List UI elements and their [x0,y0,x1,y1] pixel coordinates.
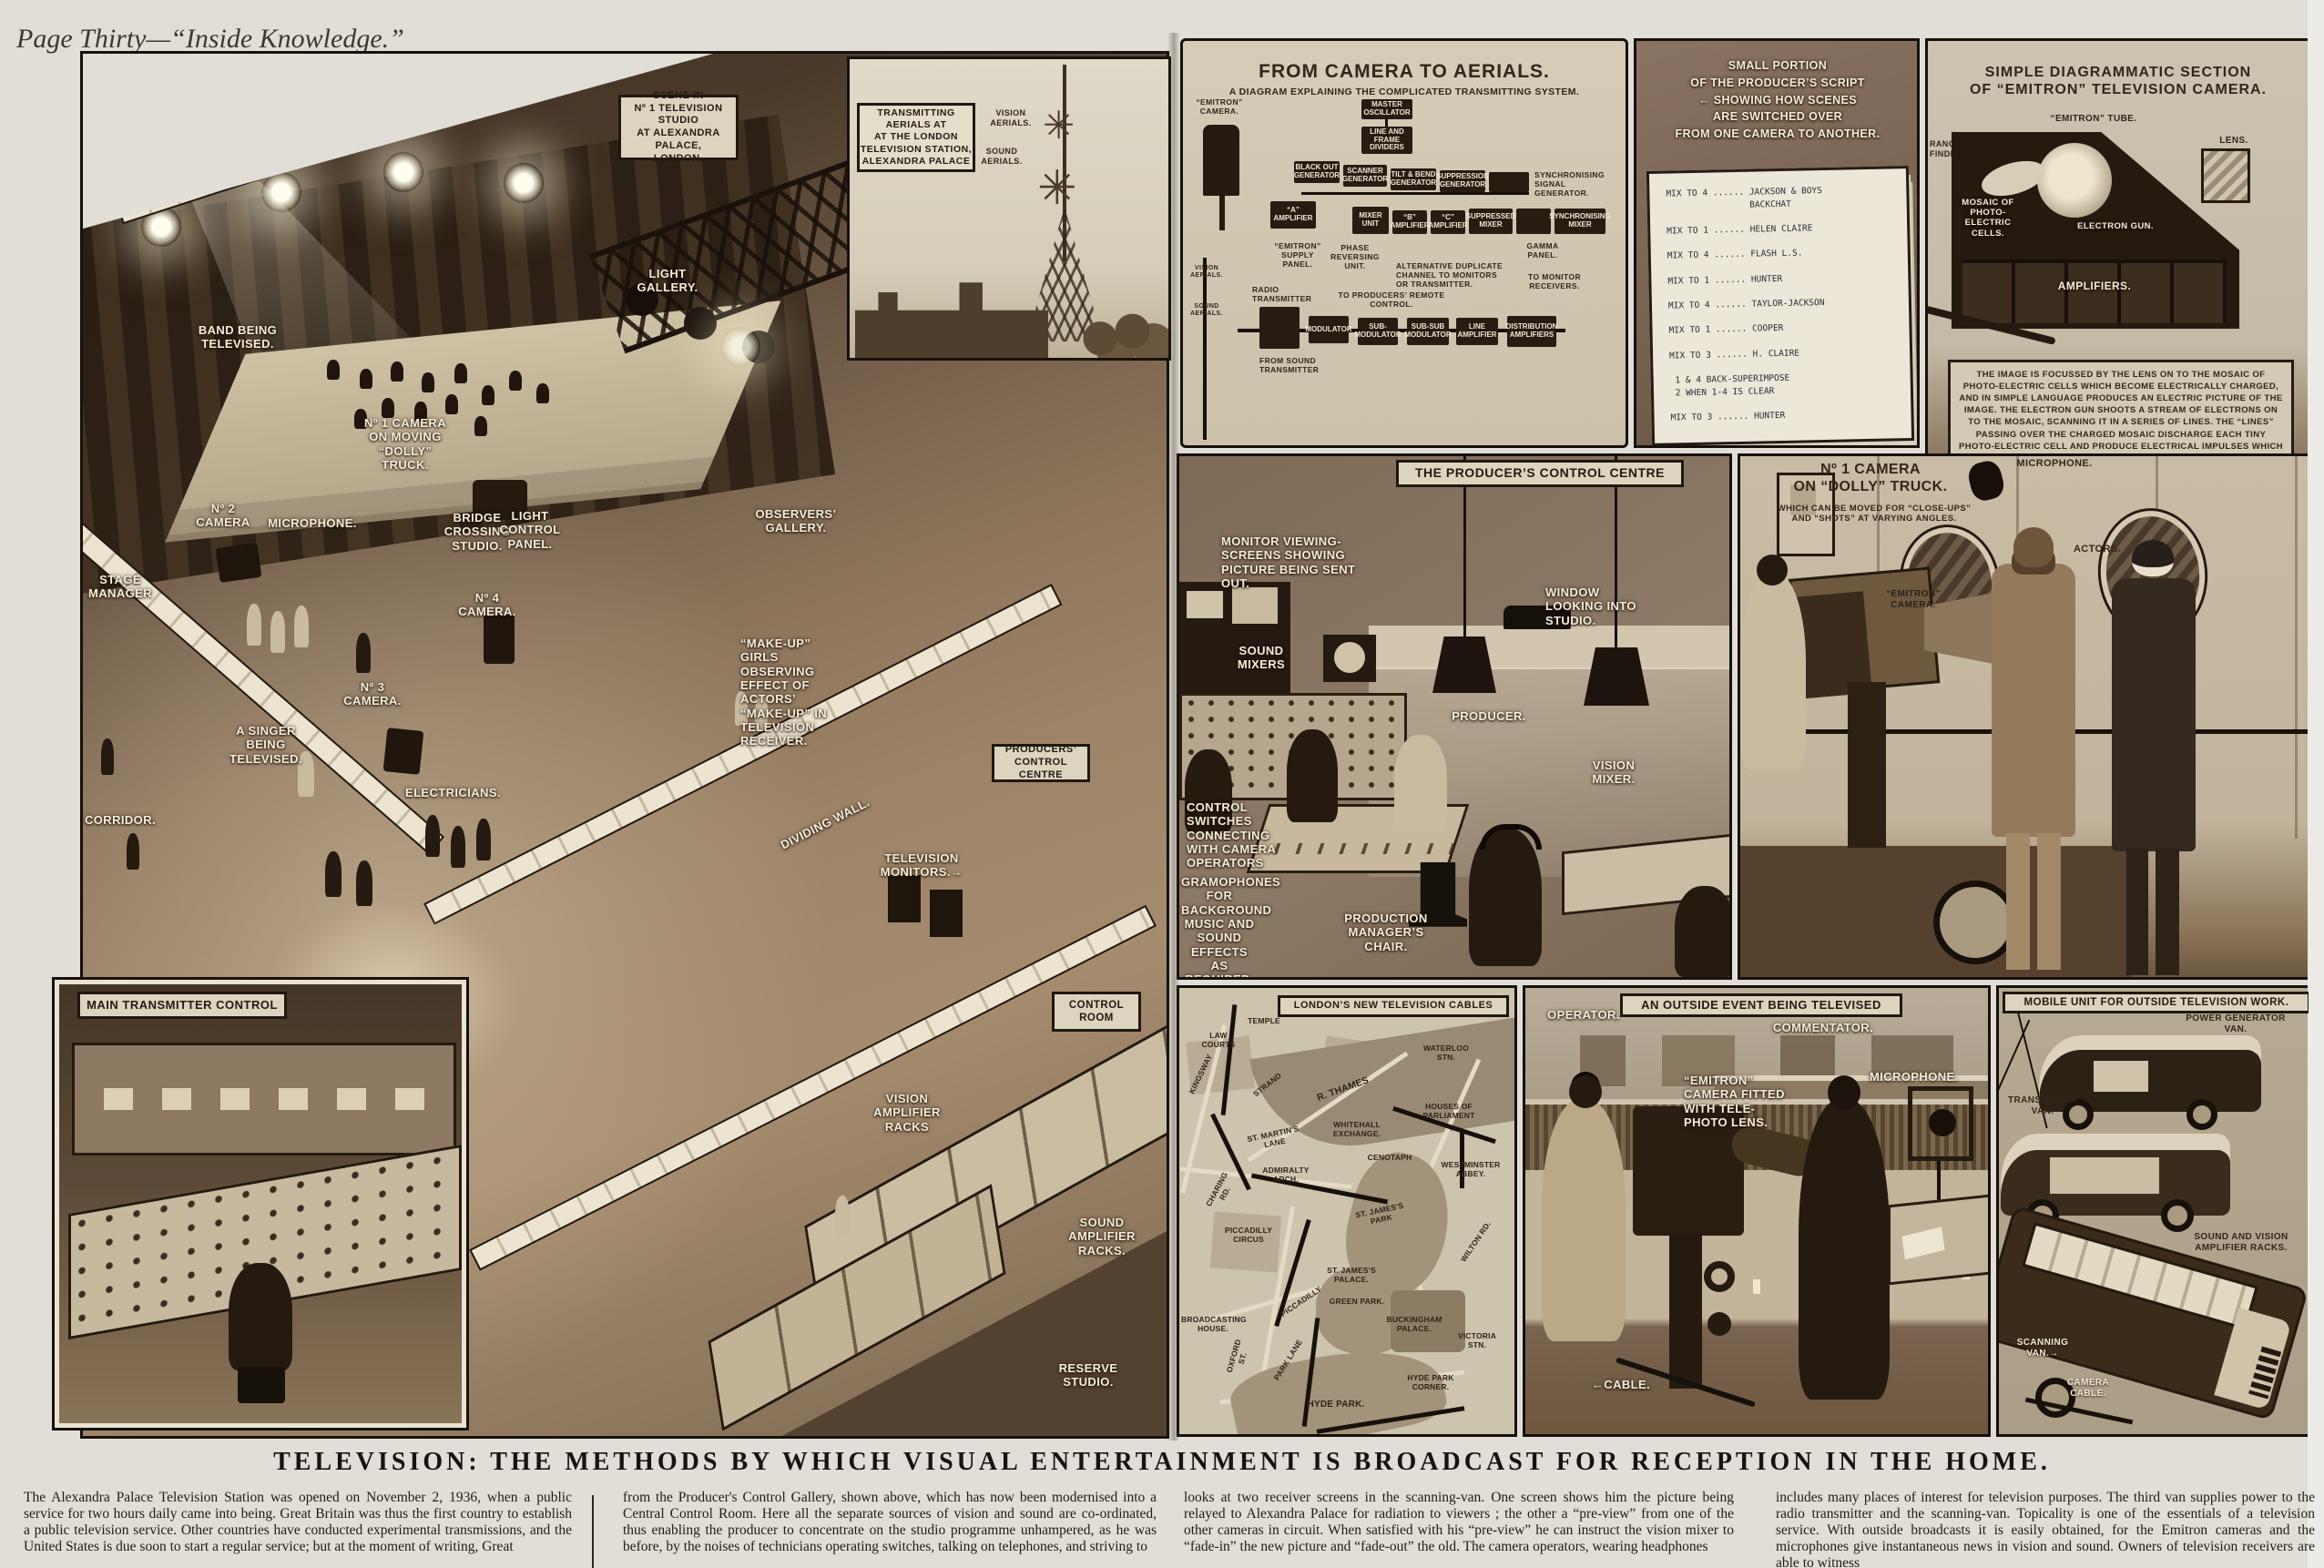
block-transmitter-unit [1259,307,1300,349]
dolly-truck-panel: Nº 1 CAMERA ON “DOLLY” TRUCK. WHICH CAN … [1738,453,2311,980]
label-radio-transmitter: RADIO TRANSMITTER [1252,285,1320,303]
map-label-green-park: GREEN PARK. [1329,1298,1385,1307]
label-makeup-girls: “MAKE-UP” GIRLS OBSERVING EFFECT OF ACTO… [740,636,842,748]
aerials-title-box: TRANSMITTING AERIALS AT AT THE LONDON TE… [857,103,975,172]
label-stage-manager: STAGE MANAGER [85,573,156,601]
label-power-generator-van: POWER GENERATOR VAN. [2179,1013,2292,1035]
outside-event-title-box: AN OUTSIDE EVENT BEING TELEVISED [1620,993,1902,1017]
block-tilt-bend-generator: TILT & BEND GENERATOR [1391,168,1436,190]
label-dolly-emitron-camera: “EMITRON” CAMERA. [1875,589,1952,611]
actor-suit-figure [1992,564,2075,837]
television-cables-map-panel: LONDON’S NEW TELEVISION CABLES LAW COURT… [1177,985,1517,1437]
block-gamma-panel [1516,209,1551,234]
block-scanner-generator: SCANNER GENERATOR [1343,165,1387,187]
dolly-subtitle: WHICH CAN BE MOVED FOR “CLOSE-UPS” AND “… [1742,504,2006,524]
map-label-westminster: WESTMINSTER ABBEY. [1432,1161,1509,1178]
label-light-gallery: LIGHT GALLERY. [627,267,708,295]
map-label-whitehall: WHITEHALL EXCHANGE. [1321,1121,1392,1138]
window-sill [1369,626,1732,669]
block-b-amplifier: “B” AMPLIFIER [1392,210,1427,234]
label-gamma-panel: GAMMA PANEL. [1516,241,1569,260]
lens-figure [2201,148,2250,203]
map-label-law-courts: LAW COURTS [1192,1032,1245,1049]
aerial-feeder-mast [1203,258,1207,440]
label-phase-reversing-unit: PHASE REVERSING UNIT. [1329,243,1381,270]
studio-lamp-glow [504,163,544,203]
label-dividing-wall: DIVIDING WALL. [756,784,893,863]
block-sub-modulator: SUB-MODULATOR [1358,318,1398,345]
vision-aerial-star-icon: ✳ [1043,103,1075,148]
map-label-temple: TEMPLE [1239,1017,1289,1026]
block-line-frame-dividers: LINE AND FRAME DIVIDERS [1361,127,1412,154]
map-label-wilton-rd: WILTON RD. [1460,1220,1493,1264]
alexandra-palace-silhouette [855,276,1048,358]
label-observers-gallery: OBSERVERS’ GALLERY. [751,507,841,535]
label-emitron-tube: “EMITRON” TUBE. [2030,114,2157,125]
map-label-oxford-st: OXFORD ST. [1224,1333,1253,1381]
label-dolly-actors: ACTORS. [2064,544,2130,555]
outside-operator-figure [1542,1099,1626,1341]
label-dolly-microphone: MICROPHONE. [2012,458,2097,470]
script-title: SMALL PORTION OF THE PRODUCER’S SCRIPT ←… [1642,57,1913,143]
page-headline: TELEVISION: THE METHODS BY WHICH VISUAL … [0,1448,2324,1477]
label-window-looking: WINDOW LOOKING INTO STUDIO. [1545,585,1660,627]
label-production-chair: PRODUCTION MANAGER’S CHAIR. [1334,911,1438,953]
label-emitron-camera: “EMITRON” CAMERA. [1187,97,1252,116]
camera-tripod [1210,194,1234,230]
van-window [2050,1157,2159,1194]
sound-aerial-star-icon: ✳ [1037,161,1077,216]
pedestal-handwheel [1704,1261,1735,1292]
label-diagram-vision-aerials: VISION AERIALS. [1183,265,1230,280]
column-rule [592,1495,594,1568]
meter [104,1088,133,1110]
label-no2-camera: Nº 2 CAMERA [185,502,261,530]
block-a-amplifier: “A” AMPLIFIER [1270,201,1316,229]
gallery-lamp-glow [720,327,760,367]
label-telephoto-camera: “EMITRON” CAMERA FITTED WITH TELE-PHOTO … [1684,1074,1786,1129]
commentator-head [1828,1075,1860,1110]
map-label-victoria: VICTORIA STN. [1449,1332,1505,1349]
article-column-1: The Alexandra Palace Television Station … [24,1490,572,1568]
map-label-st-james-palace: ST. JAMES'S PALACE. [1320,1267,1383,1284]
label-sync-signal-generator: SYNCHRONISING SIGNAL GENERATOR. [1534,170,1609,198]
page-gutter-shadow [1167,33,1180,1441]
meter [395,1088,424,1110]
label-no1-camera: Nº 1 CAMERA ON MOVING “DOLLY” TRUCK. [354,416,456,472]
main-transmitter-control-inset: MAIN TRANSMITTER CONTROL [55,980,466,1428]
label-operator: OPERATOR. [1545,1008,1622,1022]
label-to-producers-remote: TO PRODUCERS’ REMOTE CONTROL. [1334,290,1449,309]
lip-microphone-frame [1908,1086,1973,1161]
visitor-figure [325,851,341,897]
operator-chair [238,1367,285,1403]
mobile-unit-panel: MOBILE UNIT FOR OUTSIDE TELEVISION WORK.… [1996,985,2311,1437]
label-light-control-panel: LIGHT CONTROL PANEL. [494,509,566,551]
label-camera-cable: CAMERA CABLE. [2050,1378,2126,1400]
label-electron-gun: ELECTRON GUN. [2061,221,2170,231]
label-outside-microphone: MICROPHONE. [1870,1070,1946,1084]
studio-lamp-glow [383,152,423,192]
label-to-monitor-receivers: TO MONITOR RECEIVERS. [1516,272,1593,290]
flow-subtitle: A DIAGRAM EXPLAINING THE COMPLICATED TRA… [1183,87,1626,97]
monitor-screen-round [1334,642,1365,673]
label-producer: PRODUCER. [1451,709,1527,723]
operator-headphones-head [1569,1075,1602,1108]
block-master-oscillator: MASTER OSCILLATOR [1361,99,1412,119]
engineer-light-coat-figure [1394,735,1447,831]
main-transmitter-control-box: MAIN TRANSMITTER CONTROL [77,992,287,1019]
map-label-broadcasting: BROADCASTING HOUSE. [1181,1316,1245,1333]
label-no4-camera: Nº 4 CAMERA. [451,591,524,619]
label-vision-mixer: VISION MIXER. [1571,759,1656,787]
camera-operator-figure [1740,573,1806,769]
label-monitor-screens: MONITOR VIEWING-SCREENS SHOWING PICTURE … [1221,535,1381,590]
control-room-box: CONTROL ROOM [1052,992,1141,1032]
flow-connector [1385,119,1388,127]
label-commentator: COMMENTATOR. [1771,1021,1875,1034]
label-amplifiers: AMPLIFIERS. [1962,280,2227,292]
meter [162,1088,191,1110]
emitron-section-panel: SIMPLE DIAGRAMMATIC SECTION OF “EMITRON”… [1925,38,2311,479]
operator-head [1757,555,1788,585]
stagehand-figure [356,633,371,673]
map-label-st-martins: ST. MARTIN'S LANE [1244,1125,1305,1154]
label-no3-camera: Nº 3 CAMERA. [334,680,411,708]
map-label-buckingham: BUCKINGHAM PALACE. [1378,1316,1451,1333]
label-sound-vision-racks: SOUND AND VISION AMPLIFIER RACKS. [2185,1232,2298,1254]
label-control-switches: CONTROL SWITCHES CONNECTING WITH CAMERA … [1187,800,1301,871]
map-title-box: LONDON’S NEW TELEVISION CABLES [1278,995,1509,1017]
block-suppressed-mixer: SUPPRESSED MIXER [1469,209,1513,234]
transmitter-operator-figure [229,1263,292,1370]
block-sync-signal-generator [1489,172,1529,192]
rack-engineer-figure [835,1196,850,1237]
block-c-amplifier: “C” AMPLIFIER [1431,210,1465,234]
flow-bus [1301,192,1529,195]
label-corridor: CORRIDOR. [85,813,156,827]
label-reserve-studio: RESERVE STUDIO. [1045,1361,1132,1390]
label-transmitter-van: TRANSMITTER VAN. [2001,1095,2084,1117]
emitron-title: SIMPLE DIAGRAMMATIC SECTION OF “EMITRON”… [1928,65,2309,99]
outside-event-panel: AN OUTSIDE EVENT BEING TELEVISED OPERATO… [1523,985,1991,1437]
label-sound-mixers: SOUND MIXERS [1219,644,1303,672]
band-musicians [327,360,340,380]
script-paper: MIX TO 4 ...... JACKSON & BOYS BACKCHAT … [1646,166,1914,446]
camera-pedestal-column [1669,1234,1702,1389]
producer-control-panel: THE PRODUCER’S CONTROL CENTRE MONITOR VI… [1177,453,1732,980]
label-alt-duplicate-channel: ALTERNATIVE DUPLICATE CHANNEL TO MONITOR… [1396,261,1511,289]
label-vision-amplifier-racks: VISION AMPLIFIER RACKS [861,1092,953,1134]
meter [337,1088,366,1110]
label-emitron-supply-panel: “EMITRON” SUPPLY PANEL. [1269,241,1327,269]
no3-camera-figure [383,728,424,775]
commentary-desk [1888,1194,1991,1286]
desk-papers [1901,1227,1944,1259]
block-sub-sub-modulator: SUB-SUB MODULATOR [1407,318,1449,345]
block-distribution-amplifiers: DISTRIBUTION AMPLIFIERS [1507,316,1556,347]
script-body: MIX TO 4 ...... JACKSON & BOYS BACKCHAT … [1666,185,1827,424]
label-singer: A SINGER BEING TELEVISED. [221,724,311,766]
meter-panel [72,1043,456,1156]
no4-camera-figure [484,615,515,664]
van-wheel [2161,1199,2194,1232]
camera-to-aerials-panel: FROM CAMERA TO AERIALS. A DIAGRAM EXPLAI… [1180,38,1628,448]
meter [220,1088,250,1110]
block-line-amplifier: LINE AMPLIFIER [1456,318,1498,345]
dolly-title: Nº 1 CAMERA ON “DOLLY” TRUCK. [1748,462,1993,496]
label-microphone: MICROPHONE. [265,516,360,530]
map-label-piccadilly-circus: PICCADILLY CIRCUS [1218,1227,1279,1244]
block-modulator: MODULATOR [1309,316,1349,343]
no2-camera-figure [216,543,262,583]
scan-right-margin [2308,0,2324,1568]
map-label-cenotaph: CENOTAPH [1361,1154,1418,1163]
camera-pedestal [1848,682,1886,848]
actor-officer-cap [2132,540,2174,576]
block-mixer-unit: MIXER UNIT [1352,207,1389,234]
monitor-screen [1232,587,1278,624]
small-monitor [1323,635,1376,682]
label-diagram-sound-aerials: SOUND AERIALS. [1183,303,1230,319]
label-sound-amplifier-racks: SOUND AMPLIFIER RACKS. [1055,1216,1148,1257]
monitor-screen [1187,591,1223,618]
transmitting-aerials-inset: ✳ ✳ TRANSMITTING AERIALS AT AT THE LONDO… [847,56,1171,361]
article-column-2: from the Producer's Control Gallery, sho… [623,1490,1157,1568]
van-wheel [2186,1099,2217,1130]
microphone-capsule [1929,1109,1956,1136]
magazine-page: Page Thirty—“Inside Knowledge.” [0,0,2324,1568]
studio-title-box: SCENE IN Nº 1 TELEVISION STUDIO AT ALEXA… [618,95,739,160]
vision-mixer-figure [1675,886,1732,977]
map-label-hyde-park: HYDE PARK. [1307,1400,1365,1410]
actor-suit-head-hat [2013,527,2054,567]
actor-officer-figure [2112,578,2196,851]
label-lens: LENS. [2207,136,2261,147]
article-column-4: includes many places of interest for tel… [1776,1490,2315,1568]
map-label-hyde-corner: HYDE PARK CORNER. [1394,1374,1467,1391]
label-sound-aerials: SOUND AERIALS. [973,147,1030,166]
white-coat-figure [247,604,261,646]
label-scanning-van: SCANNING VAN.→ [2001,1338,2084,1359]
producers-control-centre-box: PRODUCERS’ CONTROL CENTRE [992,744,1090,782]
label-mosaic-cells: MOSAIC OF PHOTO-ELECTRIC CELLS. [1950,198,2026,239]
block-suppression-generator: SUPPRESSION GENERATOR [1440,170,1485,192]
map-label-parliament: HOUSES OF PARLIAMENT [1412,1103,1485,1120]
monitor-cabinet [1179,582,1290,704]
corridor-figure [101,738,114,775]
label-cable: ←CABLE. [1587,1378,1655,1391]
van-wheel [2219,1434,2259,1437]
producer-title-box: THE PRODUCER’S CONTROL CENTRE [1396,460,1684,487]
label-gramophones: GRAMOPHONES FOR BACKGROUND MUSIC AND SOU… [1181,875,1258,980]
label-from-sound-transmitter: FROM SOUND TRANSMITTER [1259,356,1378,374]
television-monitor-figure [888,875,921,922]
map-label-waterloo: WATERLOO STN. [1414,1044,1478,1062]
meter [279,1088,308,1110]
block-synchronising-mixer: SYNCHRONISING MIXER [1554,209,1605,234]
emitron-caption-box: THE IMAGE IS FOCUSSED BY THE LENS ON TO … [1948,360,2294,465]
label-band-being-televised: BAND BEING TELEVISED. [190,323,285,351]
commentator-figure [1799,1099,1890,1400]
actor-suit-legs [2006,833,2061,970]
label-electricians: ELECTRICIANS. [405,786,498,799]
dolly-wheel [1933,881,2017,964]
page-header: Page Thirty—“Inside Knowledge.” [16,24,404,55]
article-column-3: looks at two receiver screens in the sca… [1184,1490,1734,1568]
producers-script-panel: SMALL PORTION OF THE PRODUCER’S SCRIPT ←… [1634,38,1920,448]
van-window [2094,1061,2148,1092]
label-vision-aerials: VISION AERIALS. [981,108,1041,127]
label-television-monitors: TELEVISION MONITORS.→ [875,851,968,880]
emitron-tube-figure [2037,143,2112,218]
mobile-unit-title-box: MOBILE UNIT FOR OUTSIDE TELEVISION WORK. [2003,992,2310,1013]
electrician-figure [425,815,440,857]
actor-officer-legs [2126,848,2179,975]
flow-title: FROM CAMERA TO AERIALS. [1183,61,1626,84]
block-blackout-generator: BLACK OUT GENERATOR [1294,161,1340,183]
tree-foliage [1074,307,1168,360]
map-label-admiralty: ADMIRALTY ARCH. [1256,1166,1316,1184]
emitron-camera-figure [1203,125,1239,196]
